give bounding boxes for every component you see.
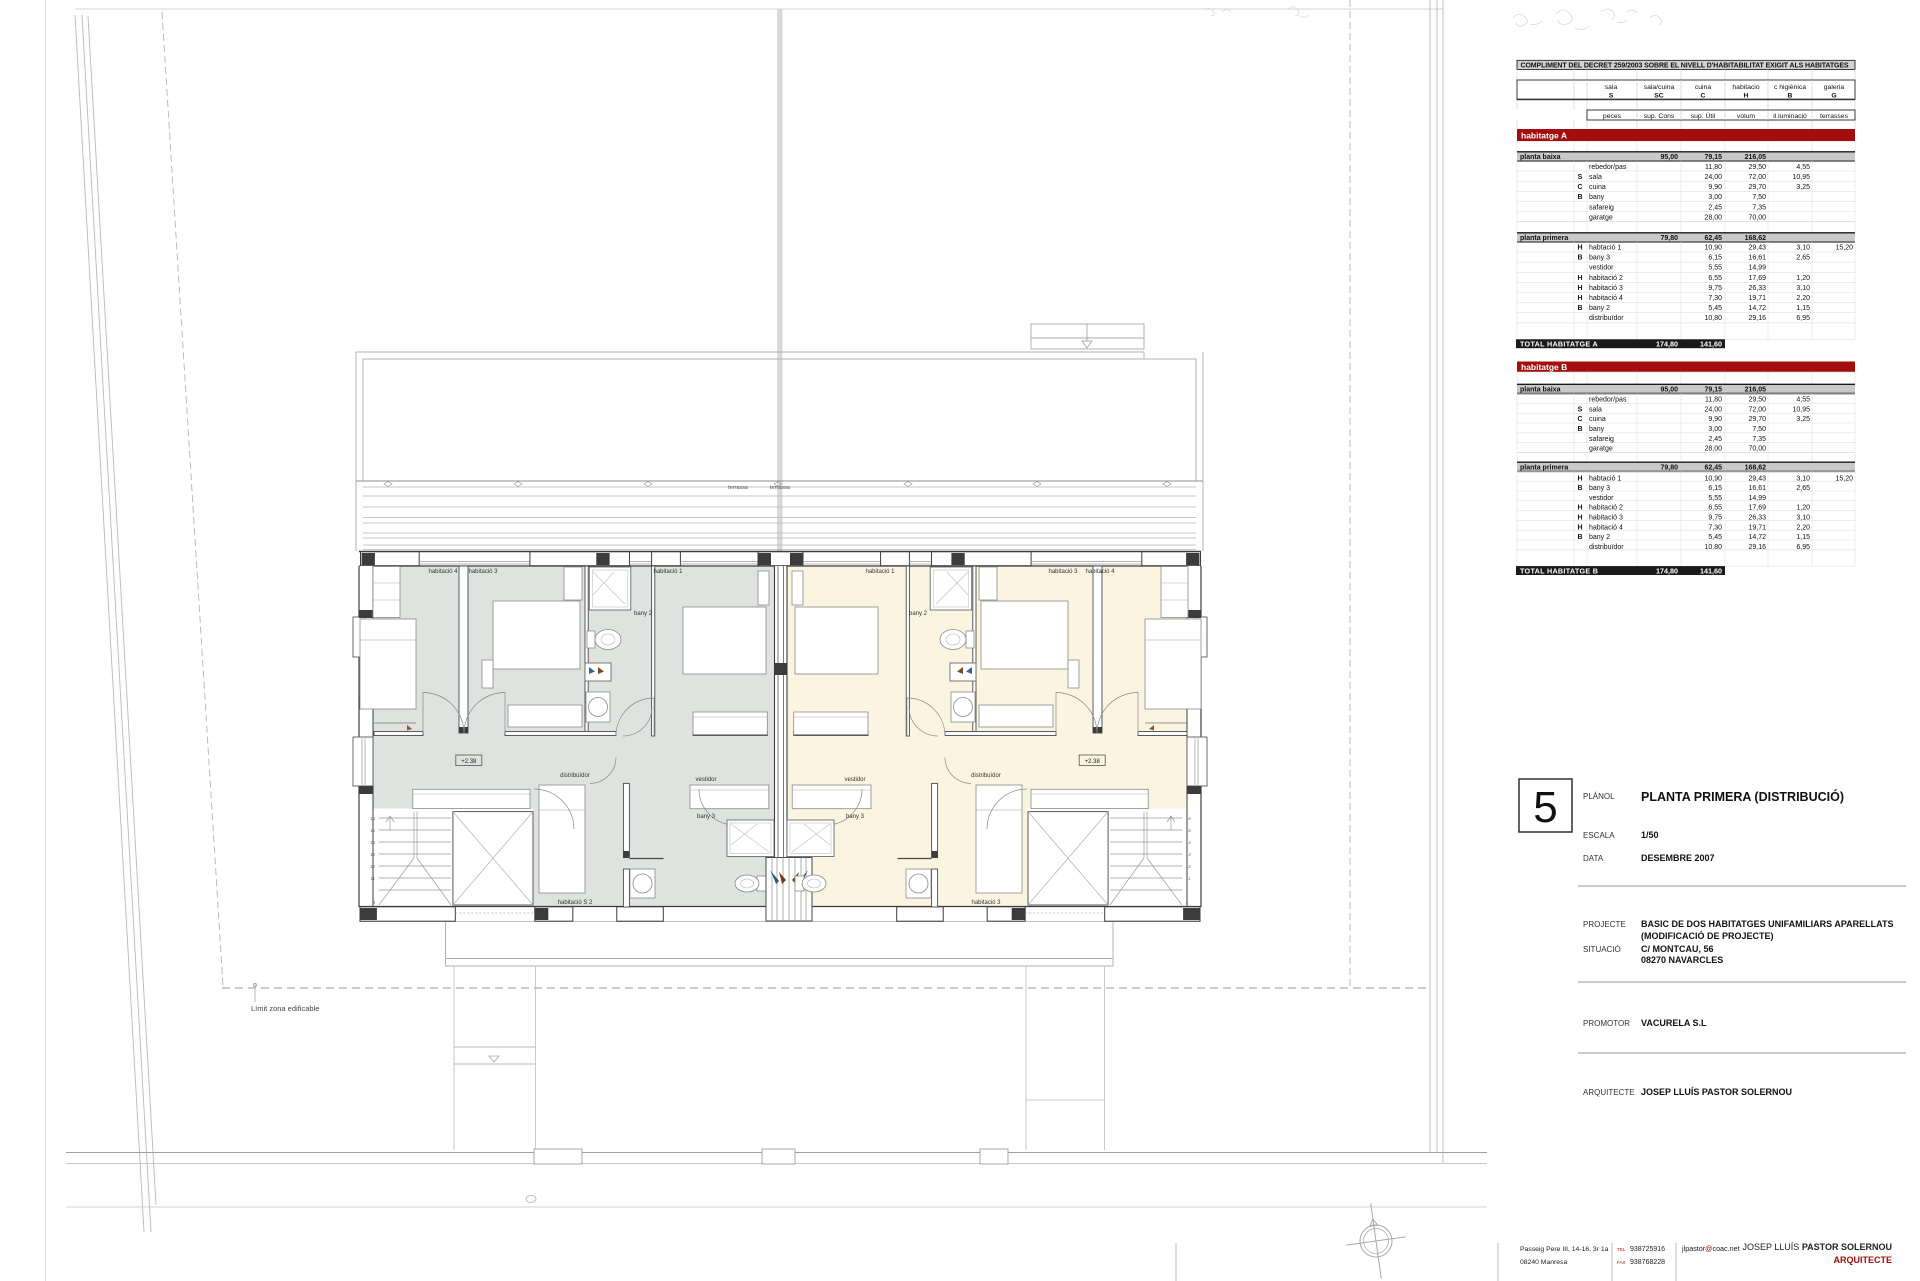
svg-text:6,95: 6,95 [1796,315,1810,322]
svg-text:11,80: 11,80 [1705,397,1722,404]
svg-text:bany 2: bany 2 [1589,534,1610,541]
svg-text:H: H [1577,515,1582,522]
svg-text:3,10: 3,10 [1796,285,1810,292]
svg-text:13: 13 [370,852,375,857]
svg-text:29,70: 29,70 [1748,184,1766,191]
svg-text:1,15: 1,15 [1796,534,1810,541]
svg-text:6,15: 6,15 [1708,255,1722,262]
svg-text:72,00: 72,00 [1748,174,1766,181]
svg-text:174,80: 174,80 [1656,566,1678,575]
svg-text:BASIC DE DOS HABITATGES UNIFAM: BASIC DE DOS HABITATGES UNIFAMILIARS APA… [1641,919,1894,929]
svg-text:3,00: 3,00 [1708,426,1722,433]
svg-text:938725916: 938725916 [1630,1246,1665,1253]
svg-text:1/50: 1/50 [1641,830,1659,840]
svg-text:planta primera: planta primera [1520,235,1568,242]
svg-text:habitació 3: habitació 3 [1048,569,1078,575]
svg-text:PLÀNOL: PLÀNOL [1583,792,1615,801]
svg-text:C: C [1701,93,1706,100]
svg-text:08240 Manresa: 08240 Manresa [1520,1259,1567,1266]
svg-text:17,69: 17,69 [1748,275,1766,282]
svg-text:TOTAL HABITATGE A: TOTAL HABITATGE A [1520,340,1598,349]
svg-text:ARQUITECTE: ARQUITECTE [1834,1255,1893,1265]
svg-text:B: B [1577,194,1582,201]
svg-text:15: 15 [1186,828,1191,833]
svg-text:bany 3: bany 3 [697,814,716,820]
svg-text:11: 11 [371,876,376,881]
svg-text:26,33: 26,33 [1748,515,1766,522]
svg-text:C: C [1577,184,1582,191]
svg-text:bany 2: bany 2 [1589,305,1610,312]
svg-text:bany 2: bany 2 [634,611,653,617]
svg-text:bany: bany [1589,194,1605,201]
svg-text:habitació 3: habitació 3 [1589,515,1623,522]
svg-text:10,95: 10,95 [1792,174,1810,181]
svg-text:24,00: 24,00 [1704,406,1722,413]
svg-text:sala: sala [1589,174,1602,181]
svg-text:sup. Cons: sup. Cons [1644,113,1675,120]
svg-text:95,00: 95,00 [1660,387,1678,394]
svg-text:141,60: 141,60 [1700,566,1722,575]
svg-text:29,70: 29,70 [1748,416,1766,423]
svg-text:SC: SC [1654,93,1664,100]
svg-text:1,15: 1,15 [1796,305,1810,312]
svg-text:H: H [1577,505,1582,512]
svg-text:Passeig Pere III, 14-16, 3r 1a: Passeig Pere III, 14-16, 3r 1a [1520,1246,1609,1253]
svg-text:3,10: 3,10 [1796,475,1810,482]
svg-text:FAX: FAX [1617,1260,1626,1265]
svg-text:habtació 1: habtació 1 [1589,475,1621,482]
svg-text:7,35: 7,35 [1752,436,1766,443]
svg-text:79,15: 79,15 [1704,154,1722,161]
svg-text:bany 2: bany 2 [909,611,928,617]
svg-text:7,35: 7,35 [1752,204,1766,211]
svg-text:7,30: 7,30 [1708,295,1722,302]
svg-text:c higiènica: c higiènica [1774,84,1806,91]
svg-text:216,05: 216,05 [1745,387,1767,394]
svg-text:11,80: 11,80 [1705,164,1722,171]
svg-text:il.luminació: il.luminació [1773,113,1807,120]
svg-text:H: H [1577,275,1582,282]
svg-text:planta baixa: planta baixa [1520,387,1561,394]
svg-text:28,00: 28,00 [1704,214,1722,221]
svg-text:5,45: 5,45 [1708,534,1722,541]
svg-text:938768228: 938768228 [1630,1259,1665,1266]
svg-text:28,00: 28,00 [1704,446,1722,453]
svg-text:COMPLIMENT DEL DECRET 259/2003: COMPLIMENT DEL DECRET 259/2003 SOBRE EL … [1521,63,1849,70]
svg-text:bany 3: bany 3 [1589,255,1610,262]
svg-text:62,45: 62,45 [1704,235,1722,242]
svg-text:17,69: 17,69 [1748,505,1766,512]
svg-text:5: 5 [1533,783,1557,832]
svg-text:TEL: TEL [1617,1247,1626,1252]
svg-text:rebedor/pas: rebedor/pas [1589,397,1627,404]
svg-text:bany 3: bany 3 [846,814,865,820]
svg-text:habitació 3: habitació 3 [971,900,1001,906]
svg-text:habitació 1: habitació 1 [865,569,895,575]
svg-text:5,55: 5,55 [1708,265,1722,272]
svg-text:29,50: 29,50 [1748,164,1766,171]
svg-text:JOSEP LLUÍS PASTOR SOLERNOU: JOSEP LLUÍS PASTOR SOLERNOU [1742,1242,1892,1252]
svg-text:DESEMBRE 2007: DESEMBRE 2007 [1641,853,1715,863]
svg-text:B: B [1577,305,1582,312]
svg-text:16: 16 [1186,816,1191,821]
svg-text:14,99: 14,99 [1748,265,1766,272]
svg-text:habitació S 2: habitació S 2 [558,900,593,906]
svg-text:15,20: 15,20 [1835,245,1853,252]
svg-text:Límit zona edificable: Límit zona edificable [251,1004,319,1013]
svg-text:1,20: 1,20 [1796,275,1810,282]
svg-text:10,90: 10,90 [1704,245,1722,252]
svg-text:habitació 3: habitació 3 [1589,285,1623,292]
svg-text:S: S [1578,406,1583,413]
svg-text:garatge: garatge [1589,446,1613,453]
svg-text:habitació 4: habitació 4 [1589,524,1623,531]
svg-text:2,20: 2,20 [1796,295,1810,302]
svg-text:14,72: 14,72 [1748,534,1766,541]
svg-text:14: 14 [1186,840,1191,845]
svg-text:cuina: cuina [1695,84,1711,91]
svg-text:9,90: 9,90 [1708,416,1722,423]
svg-text:vestidor: vestidor [1589,495,1614,502]
svg-text:9,75: 9,75 [1708,285,1722,292]
svg-text:16: 16 [370,816,375,821]
svg-text:12: 12 [370,864,375,869]
svg-text:cuina: cuina [1589,416,1606,423]
svg-text:distribuïdor: distribuïdor [1589,315,1624,322]
svg-text:2,65: 2,65 [1796,255,1810,262]
svg-text:3,10: 3,10 [1796,515,1810,522]
svg-text:DATA: DATA [1583,854,1604,863]
svg-text:3,10: 3,10 [1796,245,1810,252]
svg-text:3,25: 3,25 [1796,184,1810,191]
svg-text:bany 3: bany 3 [1589,485,1610,492]
svg-text:terrassa: terrassa [728,485,749,491]
svg-text:habitació 4: habitació 4 [1589,295,1623,302]
svg-text:141,60: 141,60 [1700,340,1722,349]
svg-text:1,20: 1,20 [1796,505,1810,512]
svg-text:VACURELA S.L: VACURELA S.L [1641,1018,1707,1028]
svg-text:29,43: 29,43 [1748,475,1766,482]
svg-text:2,45: 2,45 [1708,204,1722,211]
svg-text:216,05: 216,05 [1745,154,1767,161]
svg-text:PLANTA PRIMERA (DISTRIBUCIÓ): PLANTA PRIMERA (DISTRIBUCIÓ) [1641,789,1844,804]
svg-text:10,90: 10,90 [1704,475,1722,482]
svg-text:ARQUITECTE: ARQUITECTE [1583,1088,1635,1097]
svg-text:C/ MONTCAU, 56: C/ MONTCAU, 56 [1641,944,1714,954]
svg-text:volum: volum [1737,113,1755,120]
svg-text:sala/cuina: sala/cuina [1644,84,1675,91]
svg-text:2,45: 2,45 [1708,436,1722,443]
svg-text:safareig: safareig [1589,436,1614,443]
svg-text:safareig: safareig [1589,204,1614,211]
svg-text:14,99: 14,99 [1748,495,1766,502]
svg-text:habitació 4: habitació 4 [428,569,458,575]
svg-text:14,72: 14,72 [1748,305,1766,312]
svg-text:3,25: 3,25 [1796,416,1810,423]
svg-text:B: B [1577,255,1582,262]
svg-text:distribuïdor: distribuïdor [560,773,590,779]
svg-text:vestidor: vestidor [695,777,716,783]
svg-text:H: H [1577,295,1582,302]
svg-text:PROMOTOR: PROMOTOR [1583,1019,1630,1028]
svg-text:4,55: 4,55 [1796,397,1810,404]
svg-text:70,00: 70,00 [1748,214,1766,221]
svg-text:H: H [1577,285,1582,292]
svg-text:08270 NAVARCLES: 08270 NAVARCLES [1641,955,1723,965]
svg-text:H: H [1577,245,1582,252]
svg-text:terrassa: terrassa [770,485,791,491]
svg-text:29,16: 29,16 [1748,315,1766,322]
svg-text:(MODIFICACIÓ DE PROJECTE): (MODIFICACIÓ DE PROJECTE) [1641,930,1774,941]
svg-text:vestidor: vestidor [1589,265,1614,272]
svg-text:7,50: 7,50 [1752,426,1766,433]
svg-text:19,71: 19,71 [1748,524,1766,531]
svg-text:planta primera: planta primera [1520,464,1568,471]
svg-text:29,43: 29,43 [1748,245,1766,252]
svg-text:habitatge A: habitatge A [1521,131,1567,141]
svg-text:+2.38: +2.38 [1085,759,1101,765]
svg-text:B: B [1577,485,1582,492]
svg-text:2,65: 2,65 [1796,485,1810,492]
svg-text:TOTAL HABITATGE B: TOTAL HABITATGE B [1520,566,1598,575]
svg-text:4,55: 4,55 [1796,164,1810,171]
svg-text:19,71: 19,71 [1748,295,1766,302]
svg-text:habitació 3: habitació 3 [468,569,498,575]
svg-text:SITUACIÓ: SITUACIÓ [1583,945,1621,954]
svg-text:12: 12 [1186,864,1191,869]
svg-text:13: 13 [1186,852,1191,857]
svg-text:JOSEP LLUÍS PASTOR SOLERNOU: JOSEP LLUÍS PASTOR SOLERNOU [1641,1087,1792,1097]
svg-text:S: S [1578,174,1583,181]
svg-text:distribuïdor: distribuïdor [971,773,1001,779]
svg-text:95,00: 95,00 [1660,154,1678,161]
svg-text:+2.38: +2.38 [461,759,477,765]
svg-text:garatge: garatge [1589,214,1613,221]
svg-text:sala: sala [1589,406,1602,413]
svg-text:24,00: 24,00 [1704,174,1722,181]
svg-text:habitació 2: habitació 2 [1589,505,1623,512]
svg-text:168,62: 168,62 [1745,235,1767,242]
svg-text:6,55: 6,55 [1708,505,1722,512]
svg-text:16,61: 16,61 [1748,485,1766,492]
svg-text:26,33: 26,33 [1748,285,1766,292]
svg-text:vestidor: vestidor [844,777,865,783]
svg-text:168,62: 168,62 [1745,464,1767,471]
svg-text:10,95: 10,95 [1792,406,1810,413]
svg-text:7,30: 7,30 [1708,524,1722,531]
svg-text:79,80: 79,80 [1660,235,1678,242]
svg-text:cuina: cuina [1589,184,1606,191]
svg-text:habitatge B: habitatge B [1521,362,1567,372]
svg-text:10,80: 10,80 [1704,315,1722,322]
svg-text:72,00: 72,00 [1748,406,1766,413]
svg-text:C: C [1577,416,1582,423]
svg-text:jlpastor@coac.net: jlpastor@coac.net [1681,1244,1740,1253]
svg-text:62,45: 62,45 [1704,464,1722,471]
svg-text:9,90: 9,90 [1708,184,1722,191]
svg-text:79,80: 79,80 [1660,464,1678,471]
svg-text:H: H [1577,524,1582,531]
svg-text:5,45: 5,45 [1708,305,1722,312]
svg-text:planta baixa: planta baixa [1520,154,1561,161]
svg-text:2,20: 2,20 [1796,524,1810,531]
svg-text:29,50: 29,50 [1748,397,1766,404]
svg-text:galeria: galeria [1824,84,1845,91]
svg-text:6,15: 6,15 [1708,485,1722,492]
svg-text:3,00: 3,00 [1708,194,1722,201]
svg-text:B: B [1577,534,1582,541]
svg-text:H: H [1577,475,1582,482]
svg-text:bany: bany [1589,426,1605,433]
svg-text:habitació 2: habitació 2 [1589,275,1623,282]
svg-text:S: S [1609,93,1614,100]
svg-text:habitació 1: habitació 1 [653,569,683,575]
svg-text:79,15: 79,15 [1704,387,1722,394]
svg-text:9,75: 9,75 [1708,515,1722,522]
svg-text:5,55: 5,55 [1708,495,1722,502]
svg-text:sup. Útil: sup. Útil [1691,111,1716,120]
svg-text:habtació 1: habtació 1 [1589,245,1621,252]
svg-text:habitació: habitació [1732,84,1759,91]
svg-text:sala: sala [1605,84,1618,91]
svg-text:15: 15 [370,828,375,833]
svg-text:16,61: 16,61 [1748,255,1766,262]
svg-text:ESCALA: ESCALA [1583,831,1615,840]
svg-text:habitació 4: habitació 4 [1085,569,1115,575]
svg-text:15,20: 15,20 [1835,475,1853,482]
svg-text:peces: peces [1603,113,1622,120]
svg-text:G: G [1831,93,1836,100]
svg-text:6,55: 6,55 [1708,275,1722,282]
svg-text:PROJECTE: PROJECTE [1583,920,1626,929]
svg-text:H: H [1744,93,1749,100]
svg-text:70,00: 70,00 [1748,446,1766,453]
svg-text:B: B [1788,93,1793,100]
svg-text:rebedor/pas: rebedor/pas [1589,164,1627,171]
svg-text:B: B [1577,426,1582,433]
svg-text:terrasses: terrasses [1820,113,1849,120]
svg-text:14: 14 [370,840,375,845]
svg-text:174,80: 174,80 [1656,340,1678,349]
svg-text:11: 11 [1186,876,1191,881]
svg-text:7,50: 7,50 [1752,194,1766,201]
